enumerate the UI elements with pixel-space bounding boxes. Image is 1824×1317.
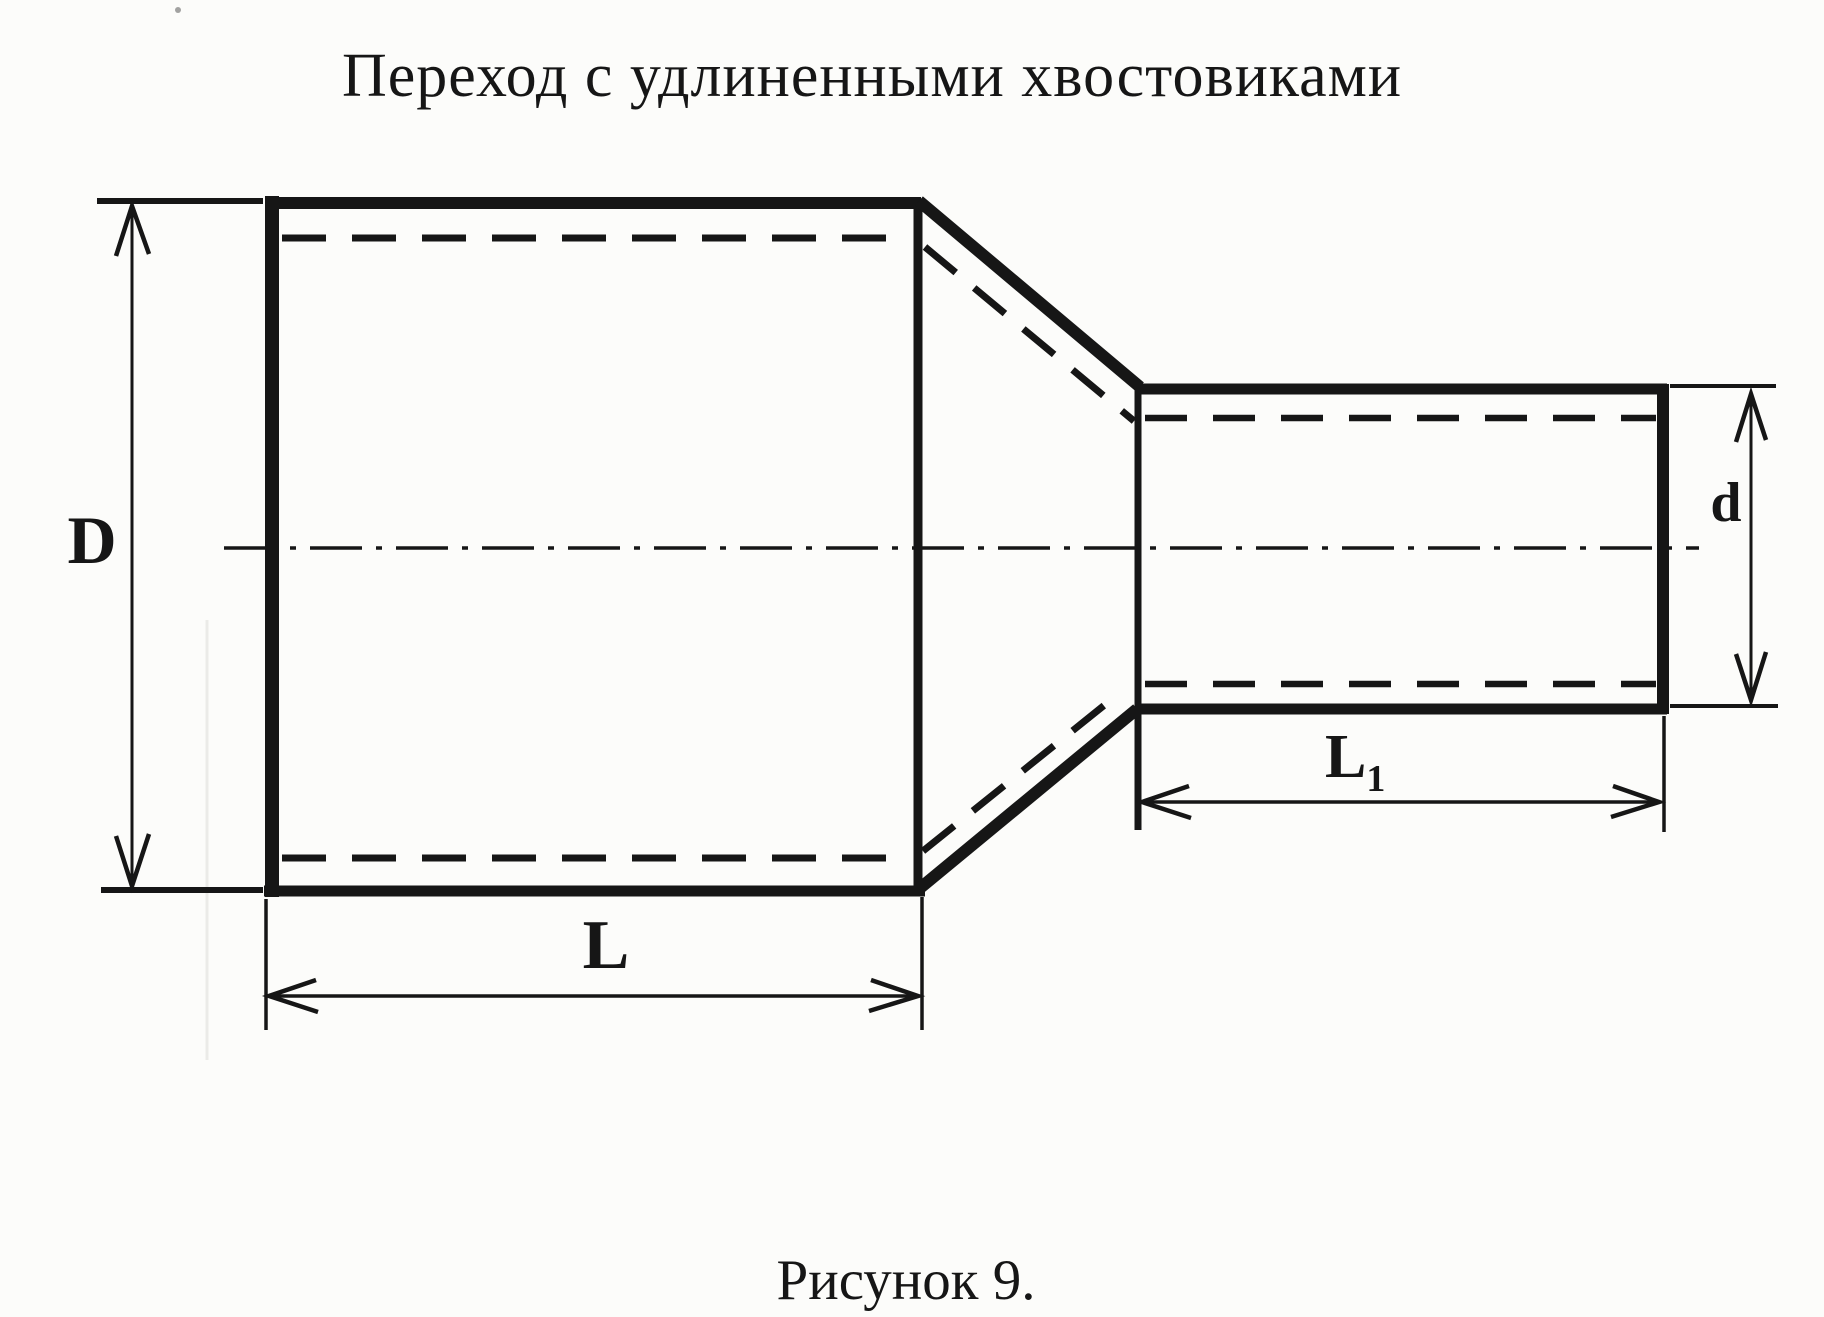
scan-speck — [175, 7, 181, 13]
label-L1-base: L — [1325, 723, 1366, 791]
scanned-drawing-page: Переход с удлиненными хвостовиками D d L… — [0, 0, 1824, 1317]
label-D: D — [67, 502, 116, 578]
figure-caption: Рисунок 9. — [777, 1249, 1036, 1312]
label-d: d — [1710, 472, 1741, 534]
label-L1-subscript: 1 — [1366, 758, 1385, 800]
drawing-title: Переход с удлиненными хвостовиками — [342, 42, 1402, 110]
technical-drawing: Переход с удлиненными хвостовиками D d L… — [0, 0, 1824, 1317]
label-L: L — [583, 907, 630, 984]
